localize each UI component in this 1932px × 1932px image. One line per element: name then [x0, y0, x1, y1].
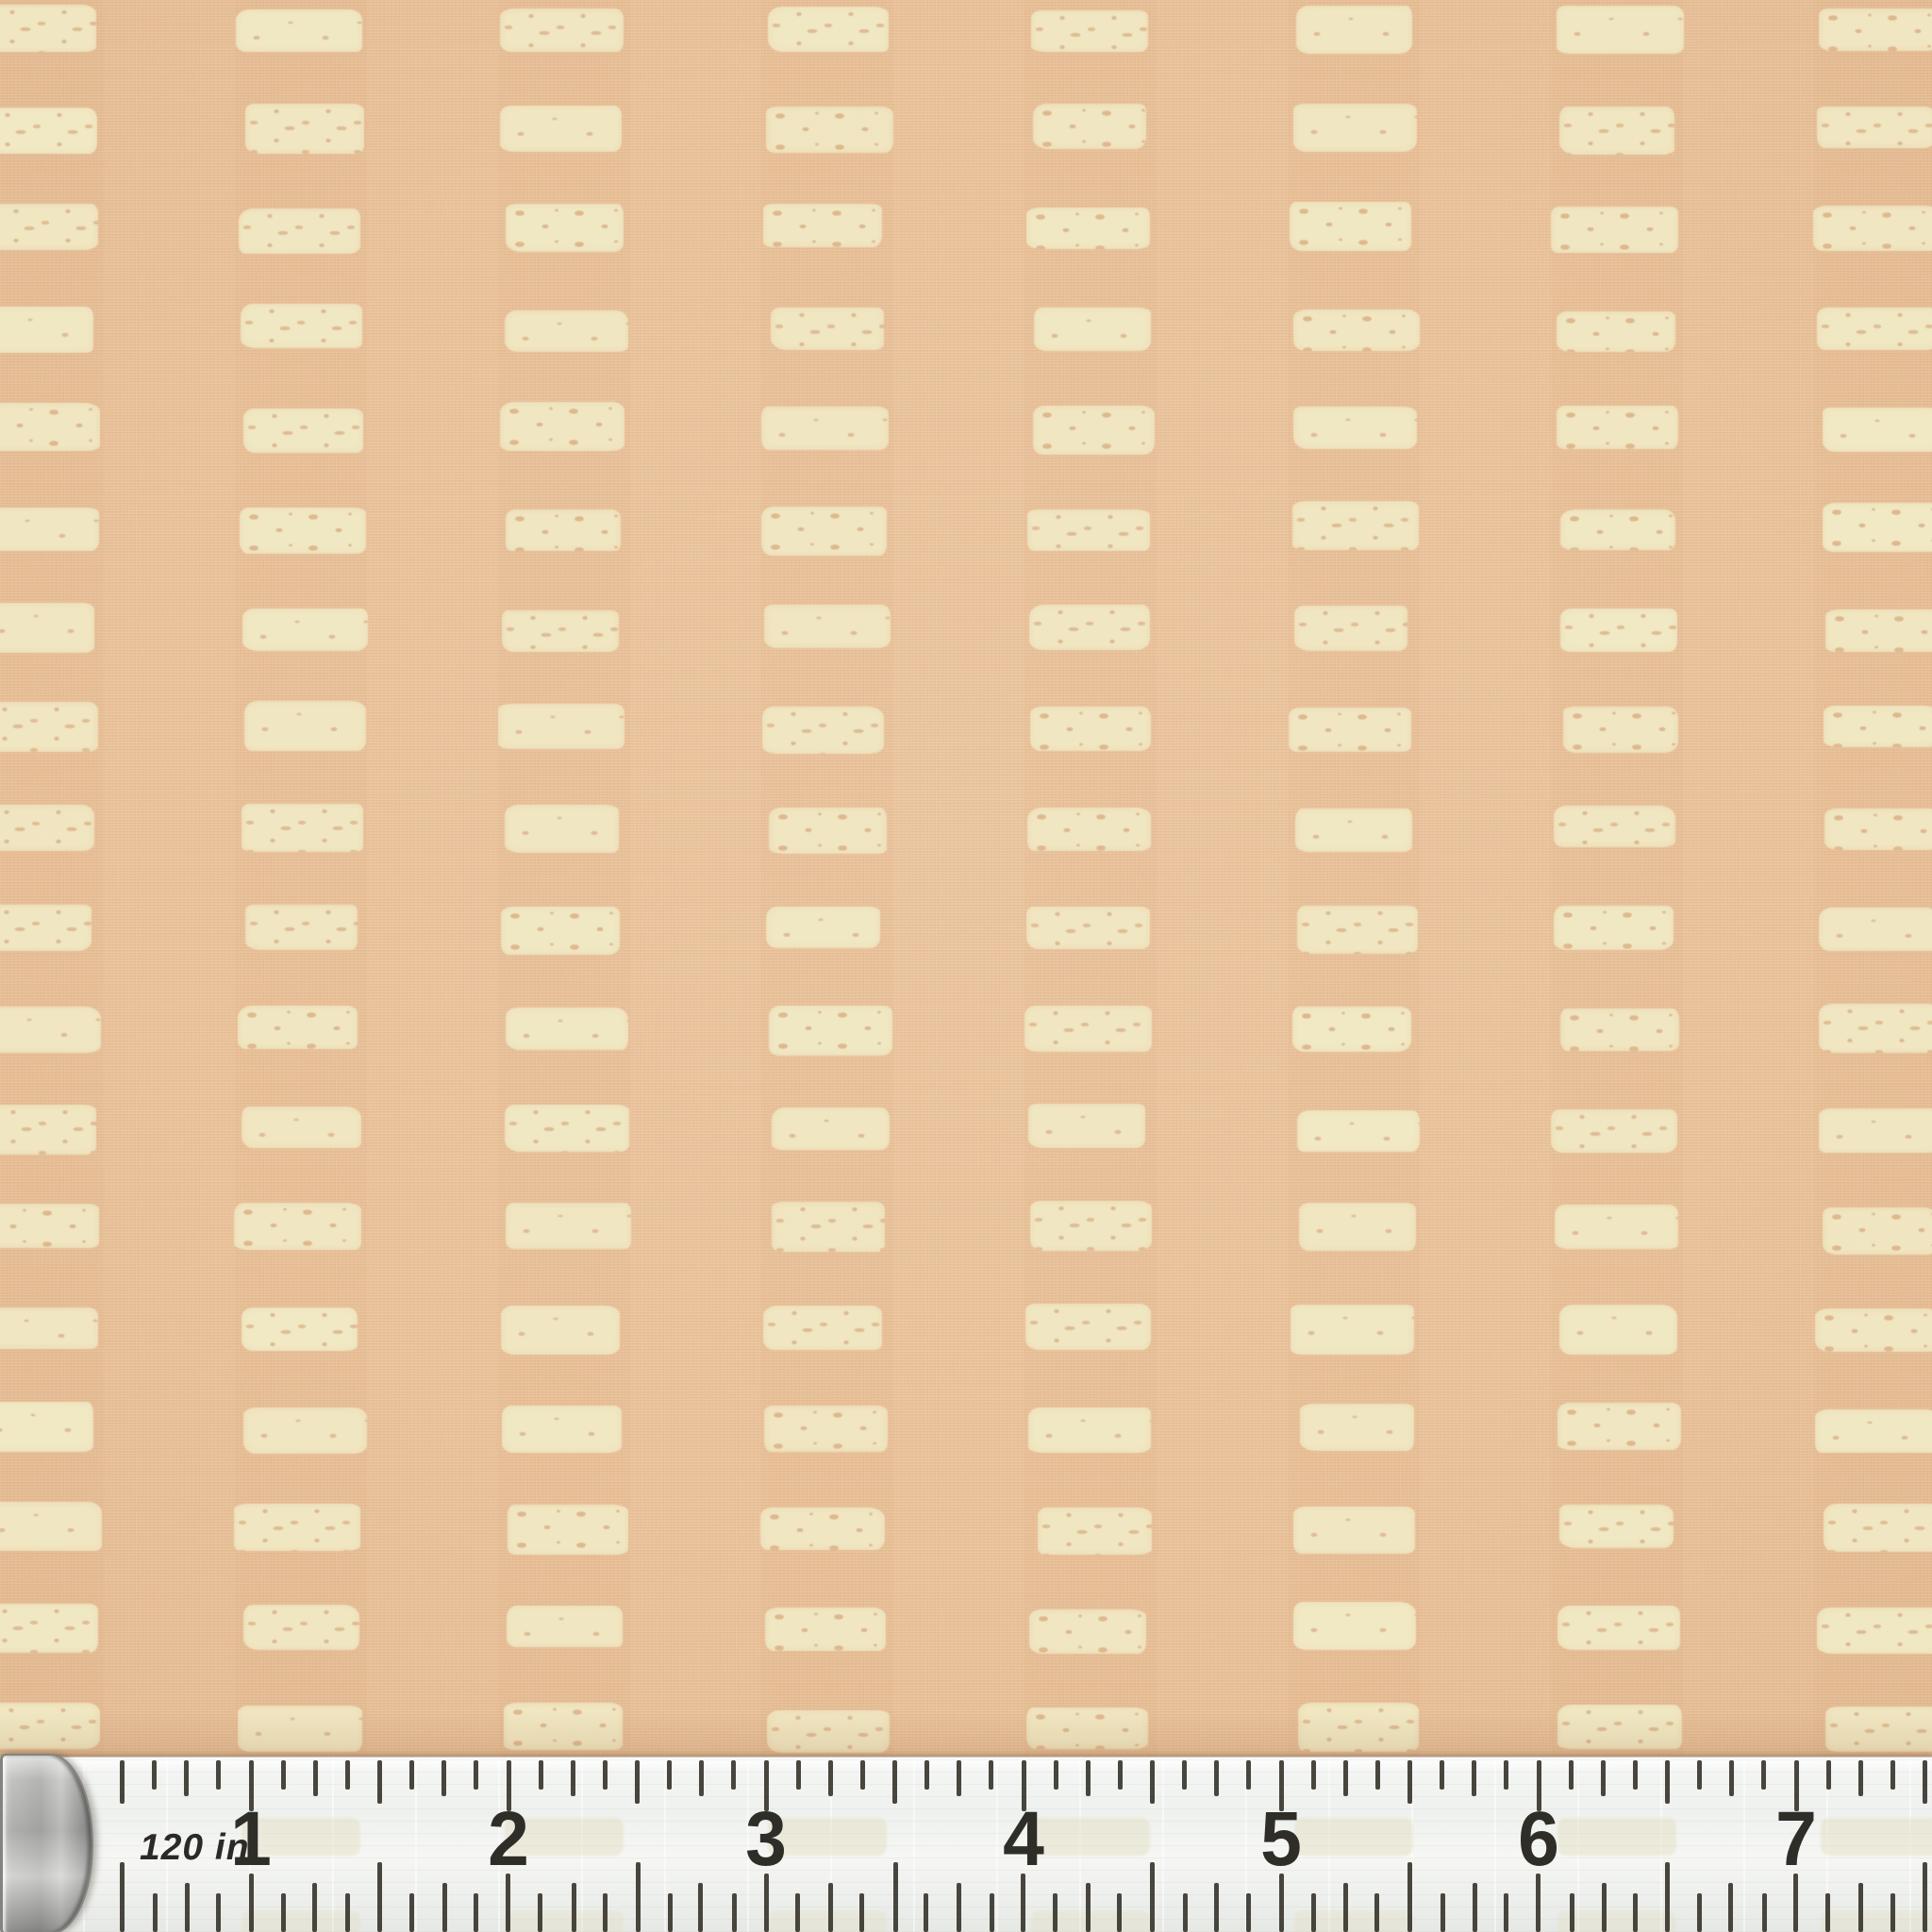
- fabric-block: [244, 701, 366, 751]
- ruler-tick-bottom: [120, 1862, 125, 1932]
- fabric-block: [1557, 1403, 1681, 1450]
- fabric-block: [1027, 808, 1151, 851]
- fabric-block: [505, 805, 619, 853]
- ruler-tick-bottom: [1762, 1893, 1767, 1932]
- fabric-block: [769, 808, 887, 854]
- tape-shadow-on-fabric: [0, 1711, 1932, 1757]
- fabric-block: [0, 108, 97, 154]
- ruler-tick-bottom: [216, 1893, 221, 1932]
- ruler-tick-bottom: [1246, 1893, 1251, 1932]
- fabric-block: [507, 1606, 623, 1647]
- fabric-block: [245, 905, 358, 950]
- ruler-tick-bottom: [312, 1883, 317, 1932]
- measuring-tape: 1234567 120 in: [0, 1757, 1932, 1932]
- fabric-column-band: [235, 0, 367, 1766]
- fabric-block: [766, 107, 893, 153]
- ruler-tick-bottom: [764, 1874, 769, 1932]
- tape-ghost-block: [1031, 1818, 1150, 1856]
- ruler-tick-top: [989, 1760, 993, 1790]
- fabric-block: [1029, 1609, 1146, 1654]
- ruler-tick-bottom: [377, 1862, 382, 1932]
- ruler-tick-bottom: [1793, 1874, 1798, 1932]
- fabric-block: [0, 1204, 99, 1248]
- fabric-block: [772, 1202, 885, 1252]
- fabric-block: [506, 1203, 631, 1249]
- fabric-block: [0, 1402, 93, 1452]
- ruler-tick-top: [152, 1760, 157, 1790]
- fabric-block: [1554, 906, 1674, 950]
- fabric-block: [505, 310, 628, 352]
- ruler-tick-top: [1440, 1760, 1444, 1790]
- fabric-block: [769, 1006, 892, 1056]
- ruler-tick-bottom: [1858, 1883, 1863, 1932]
- fabric-block: [1559, 107, 1674, 155]
- fabric-block: [498, 704, 625, 749]
- fabric-block: [1551, 1109, 1677, 1153]
- fabric-block: [1299, 1203, 1416, 1251]
- fabric-block: [1033, 406, 1155, 455]
- ruler-inch-number: 3: [745, 1801, 787, 1878]
- tape-ghost-block: [1821, 1818, 1932, 1856]
- ruler-tick-bottom: [345, 1893, 350, 1932]
- ruler-tick-top: [1246, 1760, 1251, 1790]
- ruler-tick-bottom: [1697, 1893, 1702, 1932]
- ruler-tick-top: [1504, 1760, 1508, 1790]
- fabric-block: [761, 407, 889, 450]
- fabric-block: [1815, 1308, 1932, 1352]
- fabric-block: [0, 204, 98, 250]
- ruler-tick-top: [474, 1760, 478, 1790]
- ruler-tick-top: [1214, 1760, 1219, 1796]
- fabric-block: [1560, 608, 1677, 652]
- fabric-block: [238, 1006, 358, 1049]
- fabric-block: [1823, 408, 1932, 452]
- ruler-tick-bottom: [828, 1883, 833, 1932]
- fabric-block: [1026, 907, 1150, 949]
- fabric-block: [762, 707, 884, 754]
- fabric-block: [234, 1203, 361, 1250]
- ruler-tick-bottom: [1183, 1893, 1188, 1932]
- ruler-tick-bottom: [859, 1893, 864, 1932]
- fabric-block: [239, 208, 360, 254]
- ruler-tick-bottom: [636, 1862, 641, 1932]
- fabric-block: [1295, 808, 1412, 852]
- fabric-block: [0, 1604, 98, 1653]
- ruler-tick-bottom: [1279, 1874, 1284, 1932]
- fabric-block: [1560, 1008, 1679, 1051]
- ruler-tick-bottom: [1441, 1893, 1445, 1932]
- fabric-block: [1024, 1006, 1152, 1052]
- ruler-tick-bottom: [409, 1893, 414, 1932]
- tape-ghost-block: [241, 1910, 360, 1932]
- fabric-block: [768, 7, 889, 52]
- fabric-block: [1030, 707, 1151, 751]
- ruler-tick-bottom: [1150, 1862, 1155, 1932]
- fabric-block: [243, 408, 363, 453]
- tape-ghost-block: [1557, 1910, 1676, 1932]
- tape-ghost-block: [768, 1910, 887, 1932]
- ruler-tick-top: [1182, 1760, 1187, 1790]
- ruler-tick-bottom: [1214, 1883, 1219, 1932]
- fabric-block: [1560, 509, 1675, 550]
- fabric-block: [1559, 1305, 1677, 1355]
- fabric-block: [1031, 10, 1148, 52]
- ruler-tick-bottom: [153, 1893, 158, 1932]
- fabric-block: [243, 1605, 359, 1650]
- fabric-block: [764, 1406, 888, 1452]
- fabric-block: [241, 304, 362, 348]
- fabric-block: [1025, 1304, 1151, 1350]
- fabric-column-band: [1288, 0, 1420, 1766]
- ruler-tick-top: [796, 1760, 801, 1790]
- ruler-tick-top: [345, 1760, 350, 1790]
- ruler-tick-top: [1858, 1760, 1863, 1796]
- fabric-block: [502, 610, 619, 652]
- fabric-block: [1551, 207, 1678, 253]
- tape-ghost-block: [1031, 1910, 1150, 1932]
- fabric-block: [0, 1105, 96, 1155]
- ruler-inch-number: 7: [1775, 1801, 1817, 1878]
- fabric-block: [1029, 605, 1150, 650]
- fabric-block: [764, 605, 891, 648]
- ruler-tick-top: [216, 1760, 221, 1790]
- ruler-tick-top: [1923, 1760, 1927, 1804]
- fabric-block: [241, 804, 363, 852]
- fabric-block: [1823, 1207, 1932, 1255]
- ruler-tick-top: [1665, 1760, 1670, 1804]
- fabric-block: [1813, 206, 1932, 251]
- ruler-tick-top: [1890, 1760, 1895, 1790]
- ruler-tick-bottom: [506, 1874, 510, 1932]
- fabric-block: [1293, 1507, 1415, 1554]
- fabric-block: [1028, 1104, 1145, 1148]
- fabric-block: [1293, 309, 1420, 351]
- fabric-column-band: [1814, 0, 1932, 1766]
- ruler-tick-top: [1311, 1760, 1316, 1790]
- fabric-block: [506, 1008, 628, 1050]
- fabric-column-band: [498, 0, 630, 1766]
- ruler-tick-bottom: [538, 1893, 542, 1932]
- fabric-block: [1291, 1305, 1414, 1355]
- ruler-tick-top: [1601, 1760, 1606, 1796]
- tape-ghost-block: [1821, 1910, 1932, 1932]
- ruler-tick-top: [828, 1760, 833, 1796]
- fabric-block: [1817, 1607, 1932, 1654]
- fabric-product-photo: 1234567 120 in: [0, 0, 1932, 1932]
- fabric-block: [245, 104, 364, 154]
- ruler-tick-top: [281, 1760, 286, 1790]
- fabric-block: [1293, 1602, 1416, 1650]
- fabric-block: [234, 1504, 360, 1551]
- fabric-block: [765, 1607, 886, 1651]
- fabric-block: [1297, 1110, 1420, 1152]
- ruler-tick-bottom: [1343, 1883, 1348, 1932]
- ruler-tick-top: [1118, 1760, 1123, 1790]
- ruler-tick-bottom: [572, 1883, 576, 1932]
- ruler-tick-bottom: [1536, 1874, 1541, 1932]
- ruler-tick-bottom: [1570, 1893, 1574, 1932]
- ruler-tick-top: [731, 1760, 736, 1790]
- fabric-block: [761, 507, 887, 556]
- fabric-block: [1824, 1504, 1932, 1552]
- ruler-tick-top: [699, 1760, 704, 1796]
- ruler-tick-bottom: [1890, 1893, 1895, 1932]
- ruler-tick-top: [1407, 1760, 1412, 1804]
- ruler-tick-top: [1375, 1760, 1380, 1790]
- fabric-block: [0, 508, 99, 551]
- ruler-tick-bottom: [603, 1893, 608, 1932]
- ruler-tick-bottom: [281, 1893, 286, 1932]
- ruler-tick-bottom: [1473, 1883, 1477, 1932]
- fabric-block: [1817, 308, 1932, 350]
- fabric-block: [501, 1306, 620, 1355]
- ruler-tick-top: [1697, 1760, 1702, 1790]
- ruler-tick-bottom: [1602, 1883, 1607, 1932]
- ruler-tick-bottom: [893, 1862, 898, 1932]
- ruler-tick-top: [1826, 1760, 1831, 1790]
- fabric-block: [506, 509, 621, 551]
- fabric-block: [1292, 501, 1419, 550]
- fabric-block: [0, 1007, 101, 1053]
- fabric-block: [236, 9, 362, 52]
- fabric-block: [760, 1507, 885, 1550]
- fabric-block: [763, 1306, 882, 1350]
- fabric-block: [1289, 708, 1411, 752]
- fabric-block: [1297, 906, 1418, 954]
- ruler-tick-bottom: [1633, 1893, 1638, 1932]
- ruler-tick-bottom: [442, 1883, 447, 1932]
- ruler-tick-bottom: [1053, 1893, 1058, 1932]
- fabric-block: [500, 402, 625, 451]
- ruler-tick-top: [184, 1760, 189, 1796]
- ruler-tick-top: [1086, 1760, 1091, 1796]
- fabric-block: [501, 907, 620, 955]
- fabric-block: [505, 1105, 629, 1152]
- ruler-tick-top: [409, 1760, 414, 1790]
- ruler-tick-top: [1761, 1760, 1766, 1790]
- ruler-tick-bottom: [185, 1883, 190, 1932]
- ruler-tick-bottom: [795, 1893, 800, 1932]
- ruler-tick-top: [1343, 1760, 1348, 1796]
- ruler-tick-bottom: [1504, 1893, 1508, 1932]
- fabric-block: [1554, 806, 1675, 847]
- fabric-column-band: [1551, 0, 1683, 1766]
- ruler-tick-top: [924, 1760, 929, 1790]
- tape-ghost-block: [1294, 1818, 1413, 1856]
- fabric-block: [1557, 311, 1675, 352]
- fabric-block: [1563, 707, 1678, 753]
- ruler-tick-top: [441, 1760, 446, 1796]
- fabric-block: [0, 702, 98, 752]
- fabric-block: [1296, 6, 1412, 54]
- ruler-tick-top: [635, 1760, 640, 1804]
- fabric-block: [1819, 1108, 1932, 1153]
- fabric-column-band: [1024, 0, 1157, 1766]
- ruler-tick-bottom: [957, 1883, 961, 1932]
- ruler-tick-top: [1729, 1760, 1734, 1796]
- ruler-tick-top: [603, 1760, 608, 1790]
- ruler-tick-bottom: [249, 1874, 254, 1932]
- fabric-block: [0, 905, 92, 951]
- ruler-tick-top: [892, 1760, 897, 1804]
- fabric-block: [1819, 1004, 1932, 1053]
- fabric-block: [1027, 509, 1150, 551]
- fabric-block: [0, 5, 96, 52]
- fabric-block: [1294, 606, 1407, 651]
- ruler-tick-bottom: [732, 1893, 737, 1932]
- fabric-block: [241, 1307, 358, 1351]
- ruler-inch-number: 6: [1518, 1801, 1559, 1878]
- ruler-tick-bottom: [990, 1893, 994, 1932]
- fabric-block: [1290, 202, 1411, 251]
- fabric-block: [500, 106, 622, 152]
- fabric-block: [766, 907, 880, 948]
- fabric-block: [1028, 1407, 1151, 1453]
- fabric-block: [1033, 104, 1146, 149]
- fabric-block: [241, 1107, 361, 1148]
- fabric-block: [1555, 1205, 1678, 1249]
- fabric-block: [506, 204, 624, 252]
- tape-ghost-block: [1557, 1818, 1676, 1856]
- fabric-block: [771, 308, 884, 350]
- ruler-tick-top: [120, 1760, 125, 1804]
- fabric-block: [508, 1505, 628, 1555]
- fabric-block: [1030, 1201, 1152, 1251]
- fabric-block: [1823, 503, 1932, 552]
- fabric-block: [1817, 107, 1932, 148]
- ruler-tick-top: [1569, 1760, 1574, 1790]
- ruler-tick-top: [313, 1760, 318, 1796]
- fabric-block: [1293, 104, 1417, 152]
- fabric-block: [772, 1108, 890, 1150]
- fabric-block: [1034, 308, 1151, 351]
- ruler-tick-bottom: [1728, 1883, 1733, 1932]
- ruler-tick-top: [1472, 1760, 1476, 1796]
- fabric-block: [1815, 1409, 1932, 1453]
- fabric-block: [1557, 406, 1678, 449]
- ruler-tick-bottom: [1923, 1862, 1927, 1932]
- ruler-tick-bottom: [668, 1893, 673, 1932]
- ruler-tick-bottom: [1825, 1893, 1830, 1932]
- ruler-inch-number: 4: [1003, 1801, 1044, 1878]
- metal-end-clip: [0, 1754, 93, 1932]
- ruler-tick-bottom: [1407, 1862, 1412, 1932]
- fabric-block: [763, 204, 882, 247]
- ruler-tick-bottom: [698, 1883, 703, 1932]
- fabric-block: [1824, 706, 1932, 747]
- fabric-block: [1819, 8, 1932, 51]
- fabric-block: [243, 1407, 367, 1454]
- ruler-inch-number: 5: [1260, 1801, 1302, 1878]
- ruler-tick-top: [1633, 1760, 1638, 1790]
- fabric-block: [1038, 1507, 1152, 1555]
- fabric-block: [1026, 208, 1150, 249]
- ruler-tick-top: [957, 1760, 961, 1796]
- ruler-tick-bottom: [1665, 1862, 1670, 1932]
- ruler-tick-top: [860, 1760, 865, 1790]
- fabric-block: [502, 1406, 622, 1453]
- ruler-tick-bottom: [1311, 1893, 1316, 1932]
- ruler-tick-top: [1150, 1760, 1155, 1804]
- ruler-tick-bottom: [1374, 1893, 1379, 1932]
- fabric-block: [1819, 908, 1932, 951]
- ruler-length-label: 120 in: [140, 1829, 250, 1866]
- fabric-block: [500, 8, 624, 52]
- ruler-tick-bottom: [474, 1893, 478, 1932]
- fabric-block: [1557, 1606, 1680, 1650]
- fabric-block: [0, 1307, 98, 1349]
- fabric-block: [242, 608, 368, 651]
- ruler-tick-bottom: [924, 1893, 928, 1932]
- fabric-block: [240, 508, 366, 554]
- fabric-block: [0, 403, 100, 451]
- fabric-block: [0, 1502, 102, 1551]
- fabric-block: [1300, 1404, 1414, 1451]
- fabric-column-band: [761, 0, 893, 1766]
- fabric-block: [0, 603, 94, 653]
- ruler-tick-top: [667, 1760, 672, 1790]
- fabric-block: [1825, 609, 1932, 652]
- ruler-tick-bottom: [1021, 1874, 1025, 1932]
- fabric-block: [1559, 1505, 1674, 1548]
- fabric-block: [1292, 1007, 1411, 1052]
- fabric-block: [1557, 6, 1684, 54]
- ruler-tick-top: [539, 1760, 543, 1790]
- ruler-tick-top: [377, 1760, 382, 1804]
- ruler-tick-top: [1054, 1760, 1058, 1790]
- ruler-tick-top: [571, 1760, 575, 1796]
- fabric-block: [1293, 407, 1417, 449]
- ruler-tick-bottom: [1117, 1893, 1122, 1932]
- ruler-tick-bottom: [1086, 1883, 1091, 1932]
- ruler-inch-number: 2: [488, 1801, 529, 1878]
- fabric-block: [1824, 808, 1932, 850]
- fabric-block: [0, 307, 93, 353]
- fabric-block: [0, 805, 94, 851]
